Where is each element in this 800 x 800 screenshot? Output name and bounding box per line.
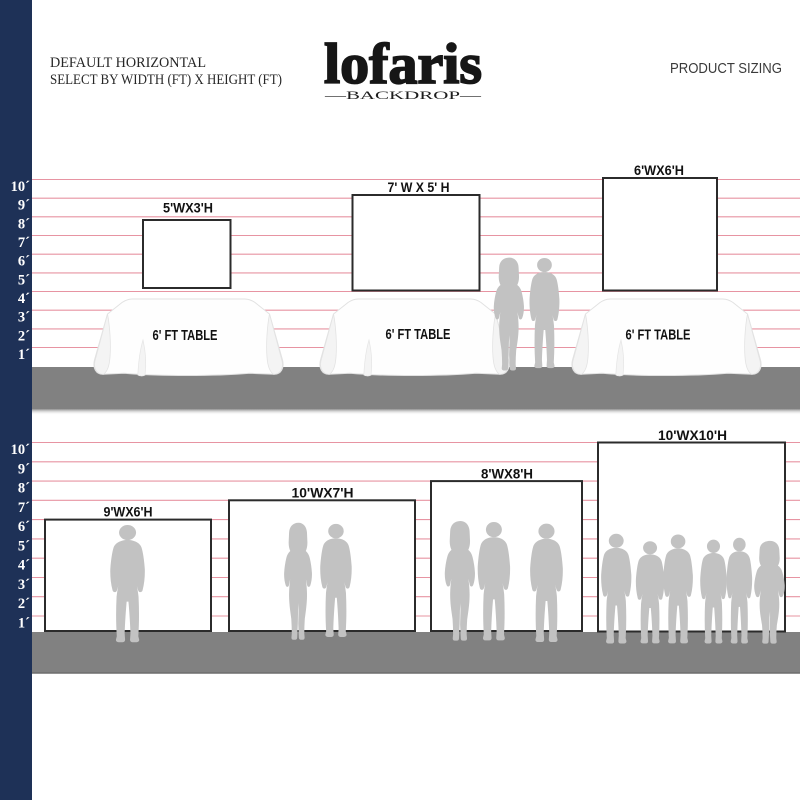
svg-text:10'WX10'H: 10'WX10'H	[658, 427, 727, 443]
svg-text:PRODUCT SIZING: PRODUCT SIZING	[670, 60, 782, 77]
svg-text:5´: 5´	[18, 272, 30, 288]
svg-text:6' FT TABLE: 6' FT TABLE	[386, 326, 451, 343]
svg-text:4´: 4´	[18, 558, 30, 574]
svg-text:lofaris: lofaris	[324, 33, 482, 96]
svg-text:6´: 6´	[18, 254, 30, 270]
svg-text:3´: 3´	[18, 310, 30, 326]
svg-text:4´: 4´	[18, 291, 30, 307]
svg-text:9´: 9´	[18, 198, 30, 214]
svg-text:1´: 1´	[18, 347, 30, 363]
svg-text:SELECT BY WIDTH (FT) X HEIGHT: SELECT BY WIDTH (FT) X HEIGHT (FT)	[50, 72, 282, 88]
svg-text:7' W X 5' H: 7' W X 5' H	[388, 179, 450, 195]
svg-text:8'WX8'H: 8'WX8'H	[481, 465, 533, 481]
svg-text:9´: 9´	[18, 461, 30, 477]
svg-text:6' FT TABLE: 6' FT TABLE	[626, 327, 691, 344]
svg-text:10´: 10´	[11, 442, 31, 458]
svg-text:7´: 7´	[18, 235, 30, 251]
svg-text:3´: 3´	[18, 577, 30, 593]
svg-text:2´: 2´	[18, 596, 30, 612]
svg-text:8´: 8´	[18, 216, 30, 232]
svg-text:6´: 6´	[18, 519, 30, 535]
svg-text:—BACKDROP—: —BACKDROP—	[323, 90, 482, 102]
svg-text:6' FT TABLE: 6' FT TABLE	[153, 327, 218, 344]
svg-text:7´: 7´	[18, 500, 30, 516]
svg-text:1´: 1´	[18, 616, 30, 632]
svg-text:10´: 10´	[11, 179, 31, 195]
svg-text:DEFAULT HORIZONTAL: DEFAULT HORIZONTAL	[50, 55, 206, 71]
svg-text:5´: 5´	[18, 538, 30, 554]
svg-text:8´: 8´	[18, 481, 30, 497]
svg-text:6'WX6'H: 6'WX6'H	[634, 162, 684, 178]
svg-text:5'WX3'H: 5'WX3'H	[163, 200, 213, 216]
svg-text:2´: 2´	[18, 328, 30, 344]
svg-text:10'WX7'H: 10'WX7'H	[292, 484, 354, 500]
svg-text:9'WX6'H: 9'WX6'H	[104, 504, 153, 520]
